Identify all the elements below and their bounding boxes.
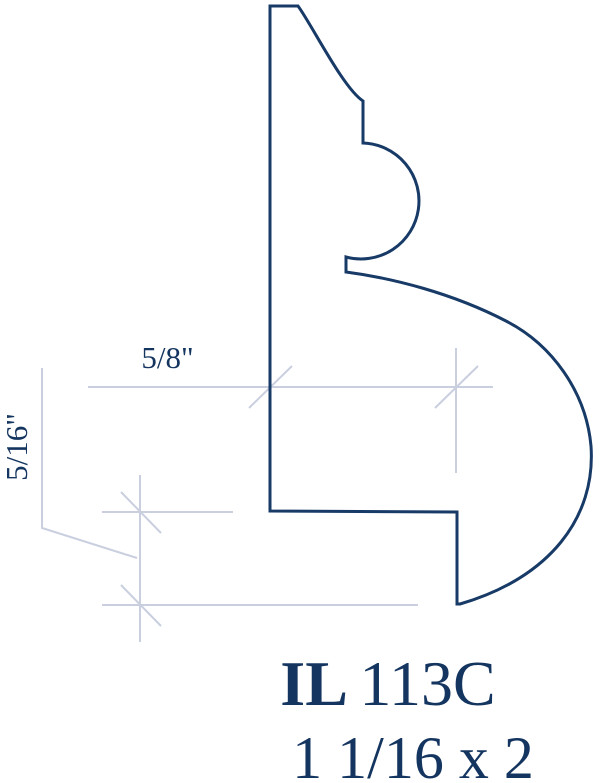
- width-dimension-label: 5/8": [110, 342, 225, 373]
- molding-profile-outline: [270, 6, 591, 604]
- molding-profile-drawing: 5/8" 5/16" IL113C 1 1/16 x 2: [0, 0, 605, 783]
- profile-code-number: 113C: [359, 648, 495, 719]
- profile-code-series: IL: [280, 648, 348, 719]
- height-label-leader-line: [42, 368, 137, 558]
- profile-code: IL113C: [188, 652, 588, 716]
- profile-size-label: 1 1/16 x 2: [213, 728, 605, 783]
- dimension-lines: [42, 348, 493, 642]
- height-dimension-label: 5/16": [1, 391, 31, 503]
